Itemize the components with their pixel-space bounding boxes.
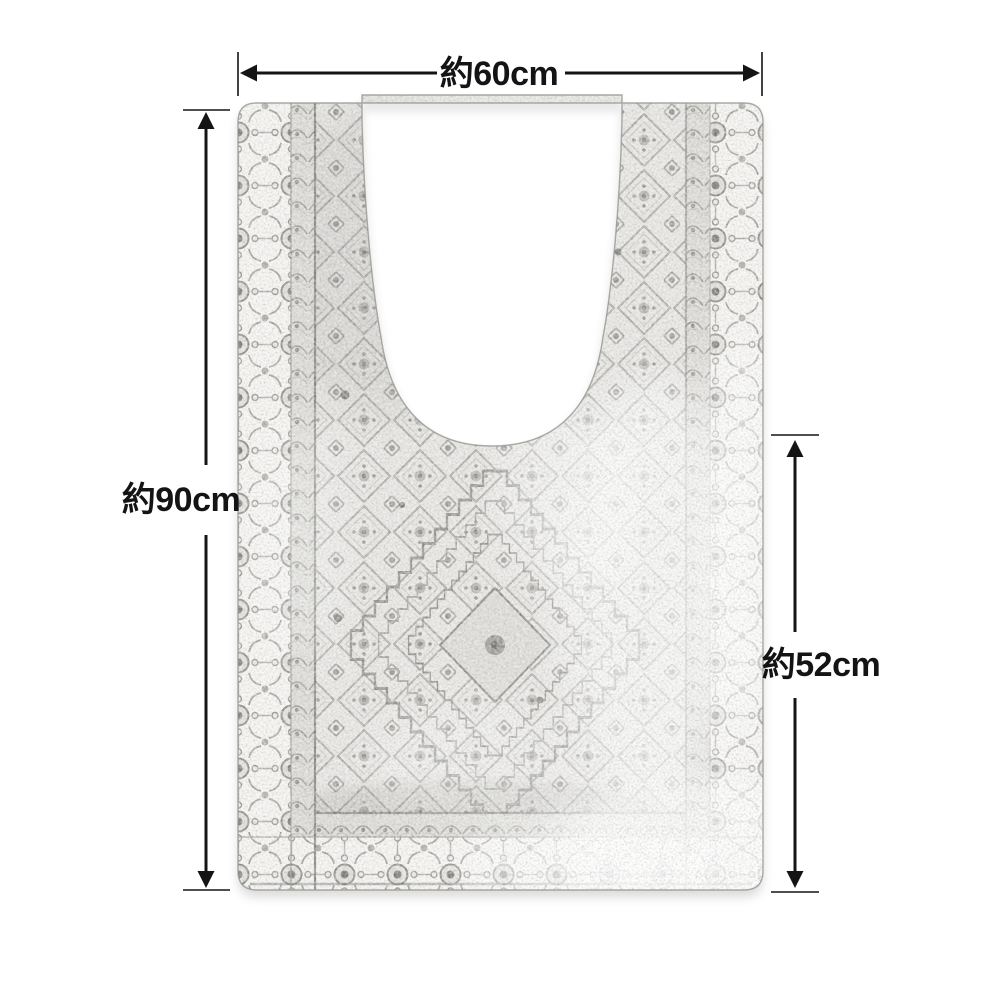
- arrowhead-up-icon: [787, 440, 804, 457]
- arrowhead-down-icon: [198, 871, 215, 888]
- product-diagram: 約60cm 約90cm 約52cm: [0, 0, 1000, 1000]
- toilet-mat: [238, 95, 850, 920]
- arrowhead-right-icon: [743, 65, 760, 82]
- width-dimension-label: 約60cm: [440, 57, 558, 91]
- arrowhead-left-icon: [240, 65, 257, 82]
- arrowhead-up-icon: [198, 112, 215, 129]
- height-dimension-label: 約90cm: [122, 483, 240, 517]
- cutout-height-dimension-label: 約52cm: [762, 648, 880, 682]
- arrowhead-down-icon: [787, 871, 804, 888]
